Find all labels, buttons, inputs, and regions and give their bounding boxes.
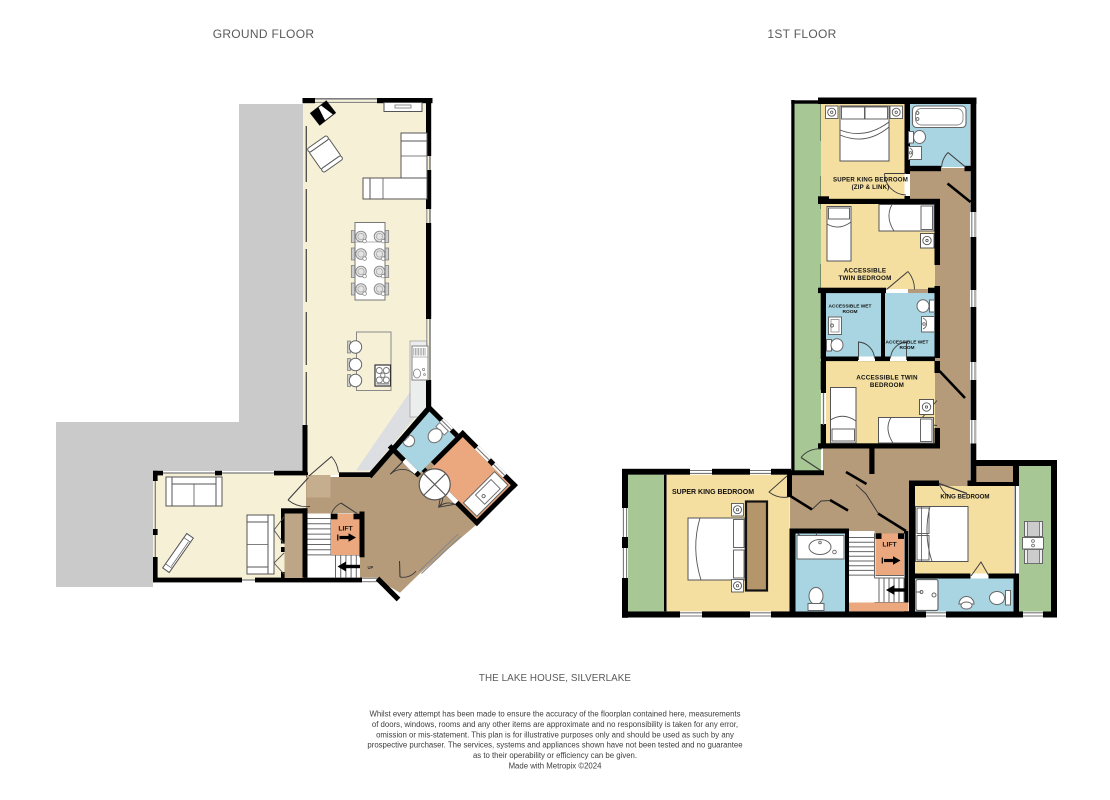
svg-text:THE LAKE HOUSE, SILVERLAKE: THE LAKE HOUSE, SILVERLAKE	[479, 673, 632, 684]
svg-text:BEDROOM: BEDROOM	[870, 382, 904, 389]
svg-text:prospective purchaser. The ser: prospective purchaser. The services, sys…	[367, 741, 742, 750]
svg-text:ROOM: ROOM	[900, 345, 915, 351]
svg-text:GROUND FLOOR: GROUND FLOOR	[213, 27, 315, 41]
svg-text:1ST FLOOR: 1ST FLOOR	[767, 27, 836, 41]
svg-text:ACCESSIBLE TWIN: ACCESSIBLE TWIN	[856, 375, 918, 382]
svg-text:SUPER KING BEDROOM: SUPER KING BEDROOM	[672, 489, 754, 496]
svg-text:SUPER KING BEDROOM: SUPER KING BEDROOM	[833, 177, 908, 184]
svg-text:Whilst every attempt has been: Whilst every attempt has been made to en…	[370, 710, 741, 719]
svg-text:ROOM: ROOM	[843, 309, 858, 315]
svg-text:omission or mis-statement. Thi: omission or mis-statement. This plan is …	[376, 730, 734, 739]
svg-text:ACCESSIBLE WET: ACCESSIBLE WET	[886, 340, 929, 346]
svg-text:LIFT: LIFT	[338, 526, 353, 533]
svg-text:(ZIP & LINK): (ZIP & LINK)	[852, 184, 890, 191]
svg-text:of doors, windows, rooms and a: of doors, windows, rooms and any other i…	[372, 720, 738, 729]
svg-text:ACCESSIBLE: ACCESSIBLE	[844, 268, 887, 275]
svg-text:Made with Metropix ©2024: Made with Metropix ©2024	[509, 762, 603, 771]
svg-text:TWIN BEDROOM: TWIN BEDROOM	[838, 275, 891, 282]
svg-text:as to their operability or eff: as to their operability or efficiency ca…	[473, 751, 637, 760]
svg-text:UP: UP	[368, 565, 374, 570]
svg-text:KING BEDROOM: KING BEDROOM	[940, 494, 989, 501]
svg-text:LIFT: LIFT	[882, 542, 897, 549]
svg-text:ACCESSIBLE WET: ACCESSIBLE WET	[829, 304, 872, 310]
